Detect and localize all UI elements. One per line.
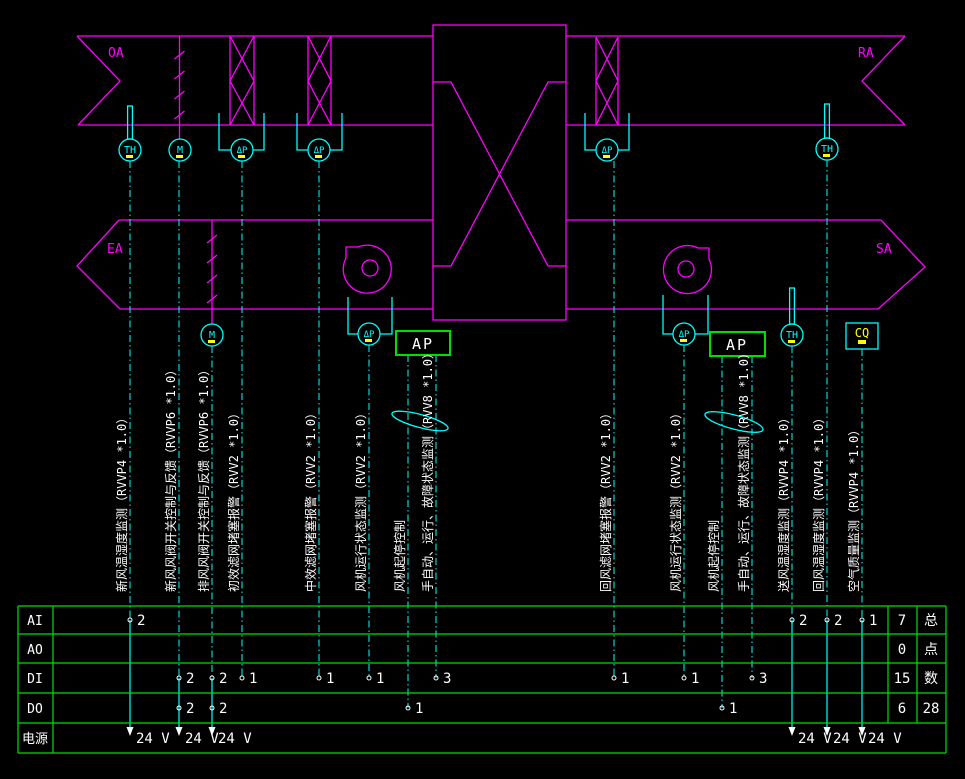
heat-exchanger-cross <box>433 82 566 266</box>
signal-label-8: 回风滤网堵塞报警（RVV2 *1.0） <box>598 407 613 592</box>
th-symbol: TH <box>124 145 136 156</box>
di-count-8: 3 <box>759 671 767 687</box>
signal-label-7: 手自动、运行、故障状态监测（RVV8 *1.0） <box>420 347 435 592</box>
sensor-tag <box>788 340 795 343</box>
dp-symbol: ΔP <box>364 330 375 340</box>
ai-count-2: 2 <box>834 613 842 629</box>
do-count-2: 1 <box>415 701 423 717</box>
return-filter-dp-sensor: ΔP <box>585 113 629 161</box>
bottom-duct: EA SA <box>77 220 925 309</box>
terminal-dot <box>682 676 686 680</box>
oa-damper-actuator: M <box>169 139 191 161</box>
fan-hub <box>362 260 378 276</box>
supply-fan <box>663 246 711 294</box>
power-arrow <box>176 727 183 736</box>
terminal-dot <box>240 676 244 680</box>
di-count-5: 3 <box>443 671 451 687</box>
sensor-tag <box>603 155 610 158</box>
return-air-filter <box>596 37 618 125</box>
cable-bundle-marker-right <box>703 407 765 436</box>
sensor-tag <box>238 155 245 158</box>
signal-label-1: 新风风阀开关控制与反馈（RVVP6 *1.0） <box>163 364 178 592</box>
row-label-ai: AI <box>27 614 43 629</box>
row-label-do: DO <box>27 702 43 717</box>
power-arrow <box>127 727 134 736</box>
do-count-0: 2 <box>186 701 194 717</box>
top-duct: OA RA <box>77 36 905 125</box>
m-symbol: M <box>177 145 183 156</box>
di-count-4: 1 <box>376 671 384 687</box>
power-label-5: 24 V <box>868 731 902 747</box>
dp-symbol: ΔP <box>314 146 325 156</box>
di-count-0: 2 <box>186 671 194 687</box>
signal-label-3: 初效滤网堵塞报警（RVV2 *1.0） <box>226 407 241 592</box>
signal-label-2: 排风风阀开关控制与反馈（RVVP6 *1.0） <box>197 364 211 592</box>
sensor-tag <box>365 339 372 342</box>
sensor-tag <box>126 155 133 158</box>
hvac-control-diagram: OA RA EA SA <box>0 0 965 779</box>
th-symbol: TH <box>821 144 833 155</box>
power-label-2: 24 V <box>218 731 252 747</box>
dp-symbol: ΔP <box>602 146 613 156</box>
sensor-tag <box>680 339 687 342</box>
primary-filter <box>230 36 254 125</box>
signal-label-10: 风机起停控制 <box>706 520 721 592</box>
signal-label-12: 送风温湿度监测（RVVP4 *1.0） <box>776 412 791 592</box>
fan-volute <box>343 245 391 293</box>
dp-bracket <box>585 113 629 150</box>
signal-label-13: 回风温湿度监测（RVVP4 *1.0） <box>811 412 826 592</box>
signal-label-11: 手自动、运行、故障状态监测（RVV8 *1.0） <box>736 347 751 592</box>
probe <box>825 104 830 138</box>
top-duct-walls <box>77 36 905 125</box>
total-header-char-2: 数 <box>924 671 938 687</box>
ea-damper-actuator: M <box>201 324 223 346</box>
fan-volute <box>663 246 711 294</box>
sensor-tag <box>208 340 215 343</box>
do-count-3: 1 <box>729 701 737 717</box>
dp-bracket <box>219 113 264 150</box>
signal-labels: 新风温湿度监测（RVVP4 *1.0） 新风风阀开关控制与反馈（RVVP6 *1… <box>114 347 861 592</box>
ai-count-3: 1 <box>869 613 877 629</box>
di-count-6: 1 <box>621 671 629 687</box>
primary-filter-dp-sensor: ΔP <box>219 113 264 161</box>
medium-filter <box>308 36 331 125</box>
medium-filter-dp-sensor: ΔP <box>297 113 342 161</box>
terminal-dot <box>612 676 616 680</box>
cq-symbol: CQ <box>855 326 869 340</box>
di-count-2: 1 <box>249 671 257 687</box>
oa-label: OA <box>108 46 124 61</box>
io-table: AI AO DI DO 电源 2 2 2 1 2 2 1 1 1 3 1 1 3 <box>18 606 946 753</box>
exhaust-fan <box>343 245 391 293</box>
sensor-tag <box>858 340 866 344</box>
oa-temp-humidity-sensor: TH <box>119 106 141 161</box>
sum-di: 15 <box>894 671 911 687</box>
power-label-1: 24 V <box>185 731 219 747</box>
probe <box>128 106 133 139</box>
cable-bundle-marker-left <box>390 407 449 435</box>
total-header-char-0: 总 <box>924 613 938 629</box>
diagram-canvas: OA RA EA SA <box>0 0 965 779</box>
sensor-tag <box>315 155 322 158</box>
sensor-tag <box>176 155 183 158</box>
ai-count-0: 2 <box>137 613 145 629</box>
sa-outlet-arrow <box>878 220 925 309</box>
power-label-0: 24 V <box>136 731 170 747</box>
air-quality-sensor: CQ <box>846 323 878 349</box>
dp-symbol: ΔP <box>679 330 690 340</box>
ra-temp-humidity-sensor: TH <box>816 104 838 160</box>
signal-label-6: 风机起停控制 <box>392 520 407 592</box>
di-count-1: 2 <box>219 671 227 687</box>
th-symbol: TH <box>786 330 798 341</box>
dp-bracket <box>297 113 342 150</box>
do-count-1: 2 <box>219 701 227 717</box>
supply-fan-dp-sensor: ΔP <box>663 295 708 345</box>
heat-exchanger-box <box>433 25 566 320</box>
power-terminals: 24 V 24 V 24 V 24 V 24 V 24 V <box>127 727 903 747</box>
ea-label: EA <box>107 242 123 257</box>
power-arrow <box>789 727 796 736</box>
sum-do: 6 <box>898 701 906 717</box>
dp-symbol: ΔP <box>237 146 248 156</box>
signal-label-4: 中效滤网堵塞报警（RVV2 *1.0） <box>303 407 318 592</box>
terminal-dot <box>317 676 321 680</box>
heat-exchanger <box>433 25 566 320</box>
row-label-ao: AO <box>27 643 43 658</box>
signal-label-5: 风机运行状态监测（RVV2 *1.0） <box>354 407 368 592</box>
dp-bracket <box>663 295 708 334</box>
bottom-duct-walls <box>119 220 881 309</box>
sum-ao: 0 <box>898 642 906 658</box>
sa-temp-humidity-sensor: TH <box>781 288 803 346</box>
sensor-tag <box>823 154 830 157</box>
di-count-3: 1 <box>326 671 334 687</box>
signal-label-9: 风机运行状态监测（RVV2 *1.0） <box>669 407 683 592</box>
fresh-air-damper <box>175 36 185 139</box>
row-label-di: DI <box>27 672 43 687</box>
signal-label-14: 空气质量监测（RVVP4 *1.0） <box>846 424 861 592</box>
sa-label: SA <box>876 242 892 257</box>
exhaust-fan-dp-sensor: ΔP <box>348 297 392 345</box>
dp-bracket <box>348 297 392 334</box>
probe <box>790 288 795 324</box>
total-points: 28 <box>923 701 940 717</box>
ra-label: RA <box>858 46 874 61</box>
row-label-power: 电源 <box>22 732 48 747</box>
ai-count-1: 2 <box>799 613 807 629</box>
total-header-char-1: 点 <box>924 642 938 658</box>
signal-label-0: 新风温湿度监测（RVVP4 *1.0） <box>114 412 129 592</box>
di-count-7: 1 <box>691 671 699 687</box>
ea-outlet-arrow <box>77 220 120 309</box>
m-symbol: M <box>209 330 215 341</box>
sum-ai: 7 <box>898 613 906 629</box>
terminal-dot <box>367 676 371 680</box>
fan-hub <box>678 261 694 277</box>
